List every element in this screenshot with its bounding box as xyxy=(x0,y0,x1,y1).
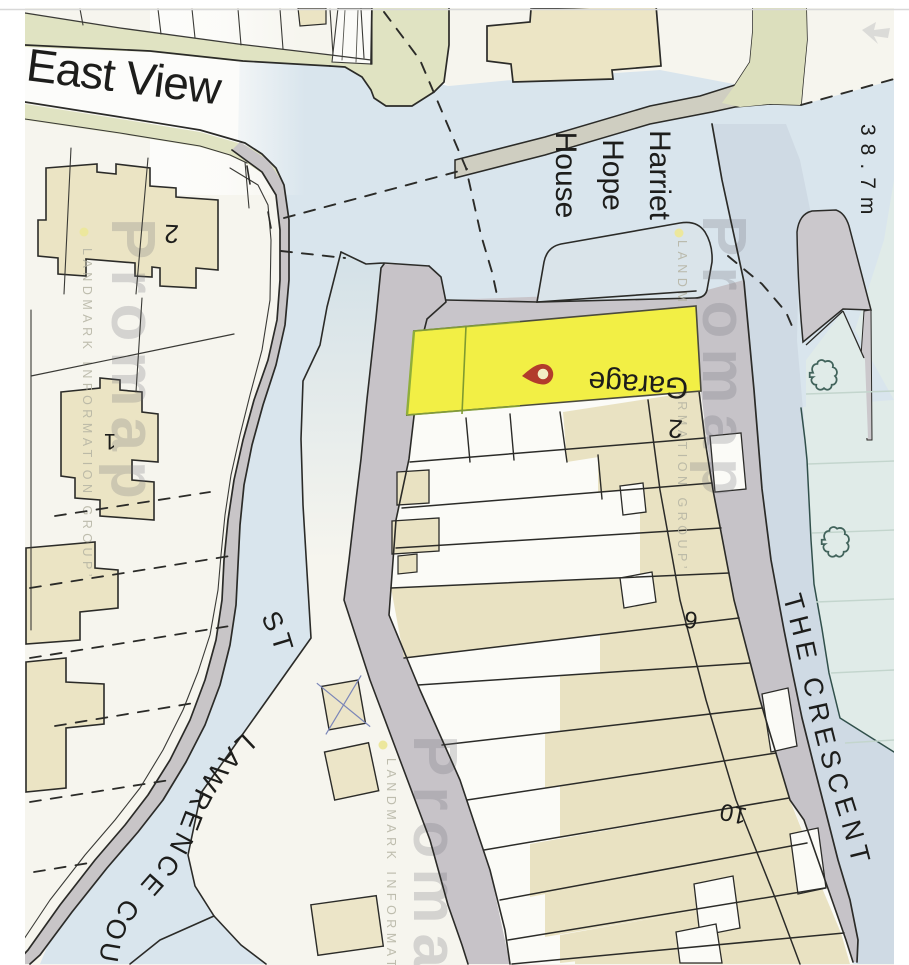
svg-text:LANDMARK INFORMATION GROUP’: LANDMARK INFORMATION GROUP’ xyxy=(675,240,689,573)
svg-text:LANDMARK INFORMATION GROUP’: LANDMARK INFORMATION GROUP’ xyxy=(80,248,94,581)
svg-text:Promap: Promap xyxy=(98,218,167,509)
svg-text:2: 2 xyxy=(164,219,180,250)
svg-text:38.7m: 38.7m xyxy=(856,124,879,222)
svg-text:10: 10 xyxy=(718,797,750,829)
svg-text:2: 2 xyxy=(667,414,684,445)
svg-text:HarrietHopeHouse: HarrietHopeHouse xyxy=(549,130,676,221)
svg-text:LANDMARK INFORMATION: LANDMARK INFORMATION xyxy=(384,758,398,965)
svg-text:1: 1 xyxy=(104,429,116,454)
svg-text:Garage: Garage xyxy=(587,365,689,405)
svg-text:Promap: Promap xyxy=(400,735,469,965)
